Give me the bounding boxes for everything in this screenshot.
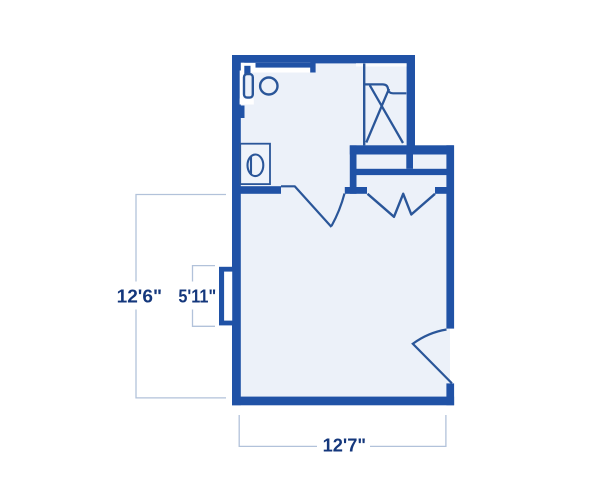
svg-text:12'7": 12'7" — [323, 435, 366, 456]
svg-text:5'11": 5'11" — [178, 286, 216, 307]
svg-text:12'6": 12'6" — [117, 286, 162, 307]
